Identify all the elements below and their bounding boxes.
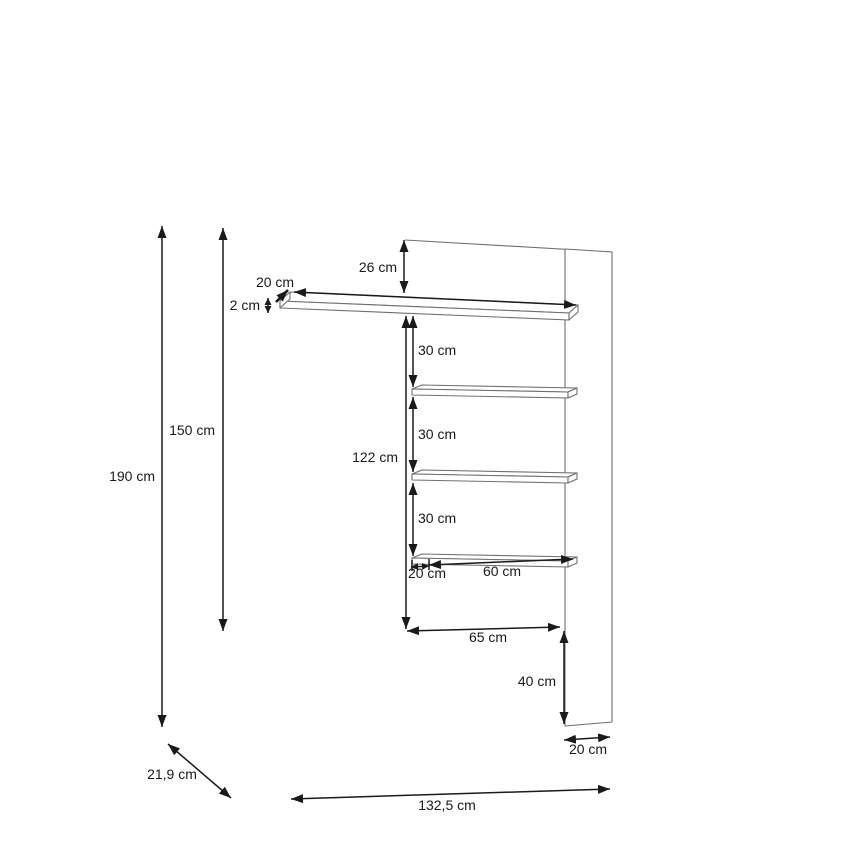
- dim-label-top-shelf-depth: 20 cm: [256, 274, 294, 290]
- technical-drawing-canvas: 190 cm 150 cm 26 cm 20 cm 2 cm 30 cm 122…: [0, 0, 868, 868]
- dim-label-panel-width: 20 cm: [569, 741, 607, 757]
- shelf-2: [412, 470, 577, 483]
- dim-label-gap2: 30 cm: [418, 426, 456, 442]
- dim-label-total-height: 190 cm: [109, 468, 155, 484]
- dim-label-bottom-shelf-length: 60 cm: [483, 563, 521, 579]
- shelf-1: [412, 385, 577, 398]
- dim-label-top-gap: 26 cm: [359, 259, 397, 275]
- dim-label-inner-width: 65 cm: [469, 629, 507, 645]
- dim-label-gap1: 30 cm: [418, 342, 456, 358]
- dim-label-inner-height: 122 cm: [352, 449, 398, 465]
- side-panel: [565, 249, 612, 726]
- dim-label-left-height: 150 cm: [169, 422, 215, 438]
- dim-label-bottom-offset: 20 cm: [408, 565, 446, 581]
- dim-label-total-width: 132,5 cm: [418, 797, 476, 813]
- dimension-drawing: 190 cm 150 cm 26 cm 20 cm 2 cm 30 cm 122…: [0, 0, 868, 868]
- dim-label-depth: 21,9 cm: [147, 766, 197, 782]
- dim-label-panel-bottom-height: 40 cm: [518, 673, 556, 689]
- dim-label-top-shelf-thickness: 2 cm: [230, 297, 260, 313]
- dim-panel-width-line: [564, 737, 610, 740]
- top-shelf: [280, 292, 578, 320]
- dim-label-gap3: 30 cm: [418, 510, 456, 526]
